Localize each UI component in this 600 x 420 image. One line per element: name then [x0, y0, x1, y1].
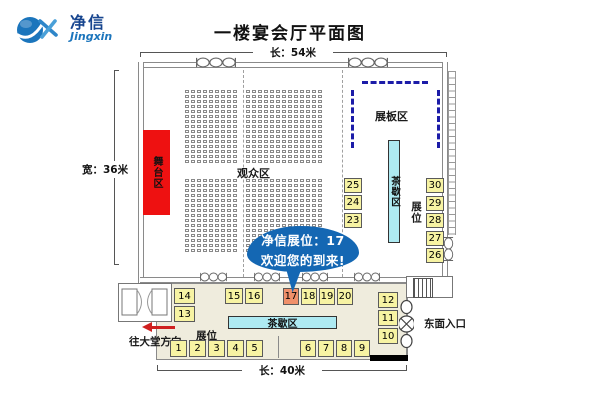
seat	[300, 110, 304, 113]
seat	[318, 150, 322, 153]
seat	[306, 125, 310, 128]
seat	[197, 90, 201, 93]
seat	[294, 219, 298, 222]
seat	[276, 160, 280, 163]
seat	[318, 184, 322, 187]
seat	[270, 140, 274, 143]
east-wall-door-icon	[443, 237, 454, 261]
seat	[318, 214, 322, 217]
seat	[221, 160, 225, 163]
seat	[264, 209, 268, 212]
seat	[203, 189, 207, 192]
seat	[282, 120, 286, 123]
seat	[233, 155, 237, 158]
seat	[282, 135, 286, 138]
seat	[215, 199, 219, 202]
seat	[197, 95, 201, 98]
seat	[197, 100, 201, 103]
seat	[300, 194, 304, 197]
seat	[318, 100, 322, 103]
seat	[209, 105, 213, 108]
booth-5: 5	[246, 340, 263, 357]
seat	[318, 209, 322, 212]
seat	[282, 130, 286, 133]
seat	[288, 189, 292, 192]
seat	[264, 140, 268, 143]
seat	[246, 135, 250, 138]
seat	[282, 105, 286, 108]
seat	[227, 135, 231, 138]
seat	[227, 120, 231, 123]
seat	[209, 219, 213, 222]
seat	[227, 95, 231, 98]
seat	[221, 209, 225, 212]
seat	[215, 145, 219, 148]
seat	[185, 249, 189, 252]
seat	[185, 234, 189, 237]
seat	[246, 214, 250, 217]
seat	[252, 135, 256, 138]
seat	[197, 120, 201, 123]
seat	[246, 239, 250, 242]
seat	[227, 244, 231, 247]
booth-9: 9	[354, 340, 370, 357]
seat	[227, 234, 231, 237]
seat	[282, 199, 286, 202]
booth-23: 23	[344, 213, 362, 228]
seat	[312, 204, 316, 207]
seat	[246, 105, 250, 108]
seat	[246, 130, 250, 133]
seat	[215, 214, 219, 217]
seat	[197, 179, 201, 182]
seat	[209, 199, 213, 202]
seat	[227, 155, 231, 158]
seat	[300, 145, 304, 148]
seat	[203, 244, 207, 247]
east-stairs-box	[406, 276, 453, 298]
seat	[197, 209, 201, 212]
east-entrance-label: 东面入口	[424, 316, 466, 331]
seat	[288, 125, 292, 128]
seat	[252, 204, 256, 207]
seat	[185, 224, 189, 227]
lobby-vestibule	[118, 283, 172, 322]
seat	[252, 219, 256, 222]
seat	[306, 179, 310, 182]
seat	[221, 120, 225, 123]
seat	[197, 214, 201, 217]
seat	[306, 160, 310, 163]
seat	[209, 120, 213, 123]
seat	[252, 145, 256, 148]
seat	[203, 105, 207, 108]
seat	[252, 125, 256, 128]
double-door-icon-6	[354, 272, 380, 282]
seat	[282, 145, 286, 148]
seat	[276, 150, 280, 153]
seat	[282, 150, 286, 153]
seat	[264, 105, 268, 108]
seat	[312, 100, 316, 103]
seat	[246, 90, 250, 93]
seat	[197, 155, 201, 158]
seat	[312, 209, 316, 212]
seat	[191, 110, 195, 113]
seat	[270, 179, 274, 182]
seat	[276, 95, 280, 98]
seat	[270, 100, 274, 103]
seat	[246, 234, 250, 237]
seat	[197, 145, 201, 148]
seat	[300, 100, 304, 103]
seat	[203, 135, 207, 138]
seat	[258, 199, 262, 202]
seat	[252, 155, 256, 158]
seat	[227, 194, 231, 197]
seat	[258, 135, 262, 138]
seat	[294, 140, 298, 143]
seat	[215, 249, 219, 252]
seat	[221, 125, 225, 128]
seat	[300, 135, 304, 138]
callout-line2: 欢迎您的到来!	[261, 250, 345, 269]
seat	[300, 189, 304, 192]
seat	[221, 219, 225, 222]
seat	[227, 249, 231, 252]
booth-3: 3	[208, 340, 225, 357]
seat	[294, 209, 298, 212]
seat	[288, 145, 292, 148]
seat	[203, 204, 207, 207]
seat	[258, 95, 262, 98]
seat	[197, 244, 201, 247]
seat	[300, 204, 304, 207]
seat	[203, 130, 207, 133]
seat	[203, 239, 207, 242]
seat	[221, 224, 225, 227]
seat	[191, 90, 195, 93]
seat	[246, 140, 250, 143]
seat	[185, 239, 189, 242]
seat	[209, 239, 213, 242]
seat	[185, 244, 189, 247]
seat	[246, 199, 250, 202]
seat	[318, 145, 322, 148]
seat	[185, 105, 189, 108]
seat	[191, 199, 195, 202]
seat	[191, 160, 195, 163]
seat	[233, 234, 237, 237]
seat	[252, 90, 256, 93]
seat	[300, 155, 304, 158]
seat	[233, 130, 237, 133]
seat	[288, 130, 292, 133]
seat	[294, 155, 298, 158]
seat	[312, 105, 316, 108]
seat	[209, 160, 213, 163]
seat	[282, 100, 286, 103]
seat	[227, 100, 231, 103]
seat	[185, 184, 189, 187]
seat	[191, 184, 195, 187]
seat	[246, 194, 250, 197]
seat	[270, 184, 274, 187]
seat	[300, 199, 304, 202]
seat	[294, 214, 298, 217]
seat	[306, 199, 310, 202]
seat	[288, 204, 292, 207]
tea-break-area-right: 茶歇区	[388, 140, 400, 243]
seat	[185, 130, 189, 133]
seat	[252, 160, 256, 163]
seat	[264, 90, 268, 93]
seat	[294, 135, 298, 138]
seat	[209, 115, 213, 118]
seat	[258, 140, 262, 143]
tea-break-right-label: 茶歇区	[387, 176, 401, 208]
booth-7: 7	[318, 340, 334, 357]
tea-break-bottom-label: 茶歇区	[268, 315, 298, 330]
east-entrance-door-icon	[399, 300, 414, 348]
seat	[282, 194, 286, 197]
seat	[215, 100, 219, 103]
seat	[191, 239, 195, 242]
seat	[197, 105, 201, 108]
seat	[185, 194, 189, 197]
seat	[221, 249, 225, 252]
to-lobby-arrow-icon	[142, 322, 176, 332]
seat	[264, 120, 268, 123]
seat	[191, 214, 195, 217]
seat	[252, 115, 256, 118]
seat	[185, 90, 189, 93]
seat	[197, 115, 201, 118]
seat	[246, 224, 250, 227]
seat	[258, 160, 262, 163]
seat	[233, 249, 237, 252]
seat	[306, 194, 310, 197]
seat	[282, 110, 286, 113]
seat	[270, 110, 274, 113]
seat	[191, 115, 195, 118]
seat	[233, 90, 237, 93]
seat	[227, 110, 231, 113]
seat	[252, 120, 256, 123]
seat	[288, 90, 292, 93]
seat	[209, 179, 213, 182]
seat	[191, 189, 195, 192]
seat	[227, 160, 231, 163]
seat	[221, 229, 225, 232]
seat	[191, 145, 195, 148]
seat	[276, 214, 280, 217]
seat	[300, 179, 304, 182]
seat	[306, 145, 310, 148]
booth-16: 16	[245, 288, 263, 304]
seat	[203, 179, 207, 182]
seat	[203, 150, 207, 153]
seat	[209, 229, 213, 232]
seat	[306, 184, 310, 187]
seat	[246, 209, 250, 212]
seat	[215, 160, 219, 163]
seat	[318, 105, 322, 108]
seat	[264, 189, 268, 192]
seat	[318, 115, 322, 118]
seat	[209, 209, 213, 212]
seat	[246, 189, 250, 192]
seat	[185, 125, 189, 128]
seat	[252, 209, 256, 212]
seat	[233, 244, 237, 247]
seat	[312, 125, 316, 128]
seat	[215, 150, 219, 153]
seat	[300, 105, 304, 108]
seat	[209, 110, 213, 113]
seat	[252, 199, 256, 202]
seat	[227, 219, 231, 222]
seat	[215, 125, 219, 128]
seat	[300, 214, 304, 217]
seat	[264, 150, 268, 153]
booth-8: 8	[336, 340, 352, 357]
seat	[197, 234, 201, 237]
seat	[227, 204, 231, 207]
seat	[282, 155, 286, 158]
seat	[288, 150, 292, 153]
seat	[270, 95, 274, 98]
seat	[246, 100, 250, 103]
seat	[221, 179, 225, 182]
seat	[252, 194, 256, 197]
seat	[221, 95, 225, 98]
seat	[227, 105, 231, 108]
seat	[288, 199, 292, 202]
seat	[312, 140, 316, 143]
booth-30: 30	[426, 178, 444, 193]
seat	[276, 145, 280, 148]
double-door-icon-2	[348, 57, 388, 68]
seat	[252, 224, 256, 227]
booth-29: 29	[426, 196, 444, 211]
seat	[246, 120, 250, 123]
seat	[318, 125, 322, 128]
booth-10: 10	[378, 328, 398, 344]
seat	[215, 239, 219, 242]
seat	[233, 219, 237, 222]
top-dimension-label: 长：54米	[253, 45, 333, 60]
seat	[282, 184, 286, 187]
seat	[312, 199, 316, 202]
seat	[300, 120, 304, 123]
seat	[294, 145, 298, 148]
seat	[233, 199, 237, 202]
booth-26: 26	[426, 248, 444, 263]
seat	[221, 244, 225, 247]
stage-label: 舞台区	[149, 156, 164, 189]
seat	[318, 219, 322, 222]
seat	[197, 125, 201, 128]
seat	[312, 214, 316, 217]
vestibule-doors-icon	[119, 284, 170, 320]
booth-11: 11	[378, 310, 398, 326]
seat	[306, 95, 310, 98]
seat	[294, 90, 298, 93]
seat	[215, 244, 219, 247]
seat	[282, 179, 286, 182]
seat	[227, 90, 231, 93]
seat	[264, 125, 268, 128]
seat	[312, 90, 316, 93]
seat	[203, 95, 207, 98]
seat	[221, 234, 225, 237]
seat	[221, 140, 225, 143]
seat	[203, 234, 207, 237]
seat	[264, 199, 268, 202]
seat	[276, 115, 280, 118]
seat	[215, 135, 219, 138]
seat	[233, 145, 237, 148]
seat	[227, 179, 231, 182]
seat	[191, 209, 195, 212]
seat	[191, 125, 195, 128]
seat	[294, 100, 298, 103]
seat	[203, 214, 207, 217]
seat	[215, 234, 219, 237]
seat	[221, 204, 225, 207]
seat	[252, 110, 256, 113]
seat	[282, 160, 286, 163]
seat	[252, 105, 256, 108]
seat	[294, 110, 298, 113]
seat	[215, 224, 219, 227]
seat	[258, 189, 262, 192]
seat	[203, 90, 207, 93]
seat	[288, 120, 292, 123]
seat	[306, 105, 310, 108]
seat	[270, 120, 274, 123]
seat	[252, 229, 256, 232]
seat	[258, 130, 262, 133]
seat	[306, 115, 310, 118]
seat	[288, 209, 292, 212]
logo-text: 净信 Jingxin	[70, 14, 112, 43]
booth-20: 20	[337, 288, 353, 305]
seat	[300, 209, 304, 212]
seat	[191, 140, 195, 143]
seat	[270, 224, 274, 227]
seat	[233, 189, 237, 192]
seat	[191, 204, 195, 207]
seat	[209, 95, 213, 98]
seat	[246, 160, 250, 163]
seat	[185, 150, 189, 153]
seat	[191, 100, 195, 103]
seat	[276, 105, 280, 108]
seat	[288, 115, 292, 118]
seat	[276, 189, 280, 192]
seat	[215, 204, 219, 207]
seat	[215, 155, 219, 158]
seat	[209, 145, 213, 148]
seat	[294, 95, 298, 98]
seat	[221, 189, 225, 192]
seat	[221, 155, 225, 158]
seat	[318, 110, 322, 113]
seat	[294, 184, 298, 187]
seat	[312, 120, 316, 123]
